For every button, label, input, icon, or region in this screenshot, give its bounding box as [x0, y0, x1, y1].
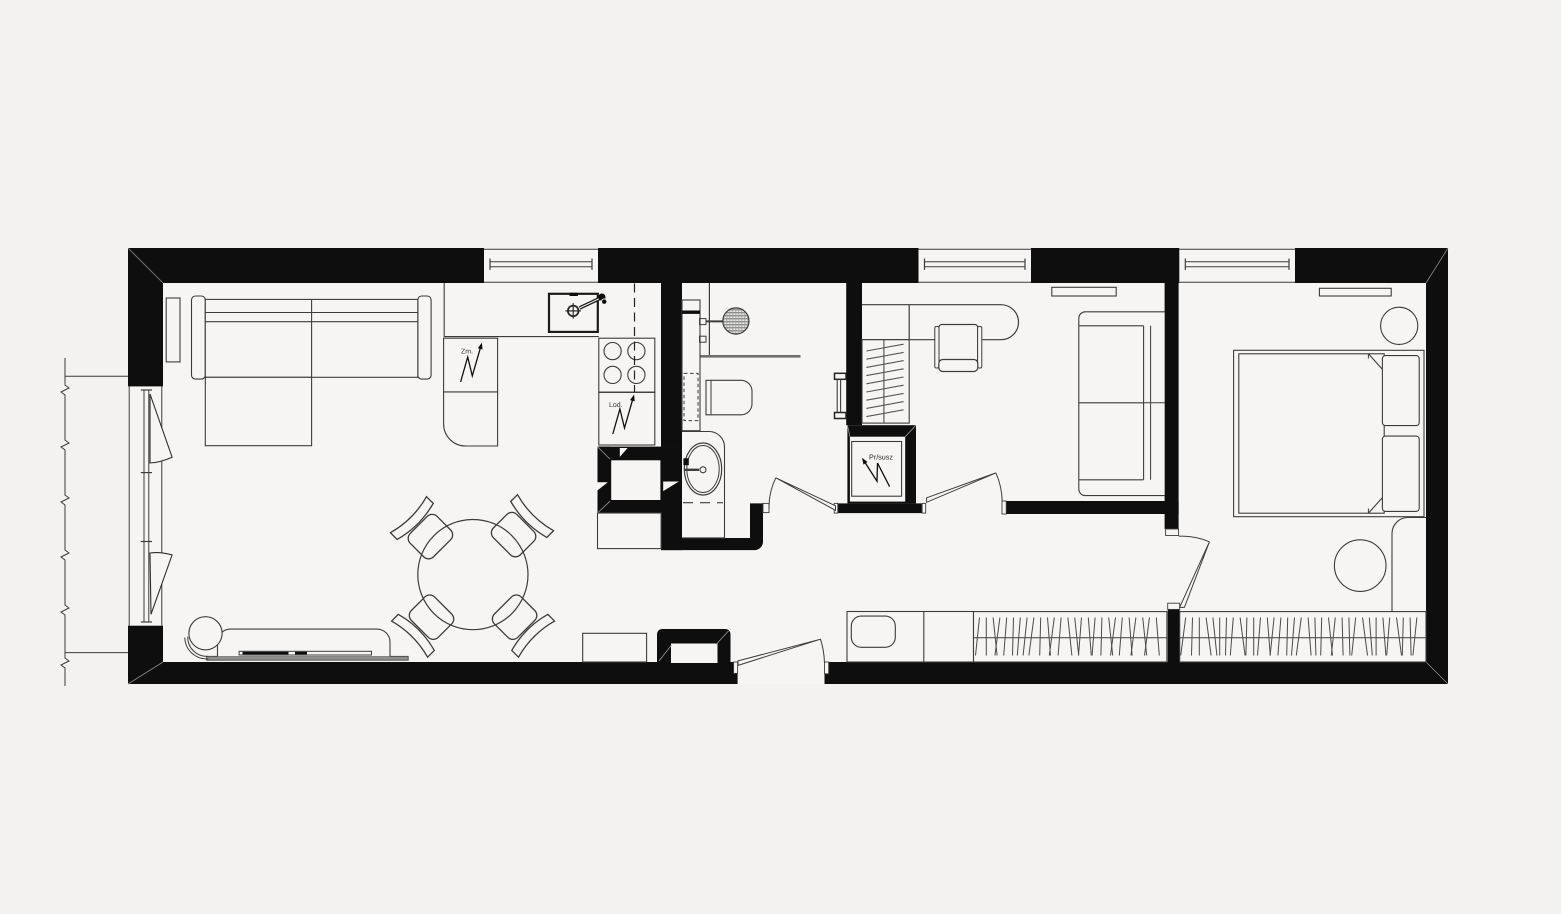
svg-text:Pr/susz: Pr/susz: [869, 453, 893, 462]
svg-text:Lod.: Lod.: [609, 401, 623, 409]
svg-text:Zm.: Zm.: [461, 349, 473, 356]
